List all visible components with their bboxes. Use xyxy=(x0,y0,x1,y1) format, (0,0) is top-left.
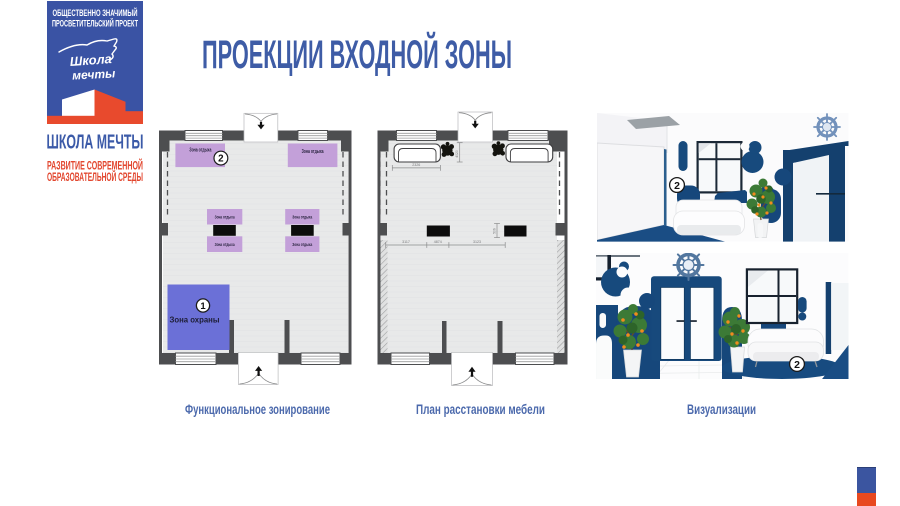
svg-text:4020: 4020 xyxy=(455,150,459,158)
svg-text:Зона охраны: Зона охраны xyxy=(170,314,220,324)
svg-text:3123: 3123 xyxy=(473,240,481,244)
svg-text:План расстановки мебели: План расстановки мебели xyxy=(416,402,545,417)
svg-text:Зона отдыха: Зона отдыха xyxy=(215,215,235,220)
svg-text:ПРОСВЕТИТЕЛЬСКИЙ ПРОЕКТ: ПРОСВЕТИТЕЛЬСКИЙ ПРОЕКТ xyxy=(52,18,138,29)
svg-text:1: 1 xyxy=(200,301,206,312)
svg-text:Функциональное зонирование: Функциональное зонирование xyxy=(185,402,330,417)
svg-text:506: 506 xyxy=(492,228,496,234)
svg-text:2326: 2326 xyxy=(412,163,420,167)
svg-text:2: 2 xyxy=(674,181,680,192)
svg-text:ПРОЕКЦИИ ВХОДНОЙ ЗОНЫ: ПРОЕКЦИИ ВХОДНОЙ ЗОНЫ xyxy=(202,31,512,77)
svg-text:Визуализации: Визуализации xyxy=(687,402,756,417)
svg-text:2: 2 xyxy=(218,154,224,165)
svg-text:мечты: мечты xyxy=(72,66,117,82)
svg-text:Зона отдыха: Зона отдыха xyxy=(292,215,312,220)
svg-text:Зона отдыха: Зона отдыха xyxy=(292,242,312,247)
svg-text:ШКОЛА МЕЧТЫ: ШКОЛА МЕЧТЫ xyxy=(47,130,144,153)
svg-text:3117: 3117 xyxy=(402,240,410,244)
svg-text:Зона отдыха: Зона отдыха xyxy=(215,242,235,247)
svg-text:Зона отдыха: Зона отдыха xyxy=(189,148,211,154)
svg-text:Зона отдыха: Зона отдыха xyxy=(302,149,324,155)
svg-text:2: 2 xyxy=(794,360,800,371)
svg-text:4874: 4874 xyxy=(434,240,442,244)
svg-text:ОБРАЗОВАТЕЛЬНОЙ СРЕДЫ: ОБРАЗОВАТЕЛЬНОЙ СРЕДЫ xyxy=(47,169,143,184)
svg-text:ОБЩЕСТВЕННО ЗНАЧИМЫЙ: ОБЩЕСТВЕННО ЗНАЧИМЫЙ xyxy=(53,7,138,18)
